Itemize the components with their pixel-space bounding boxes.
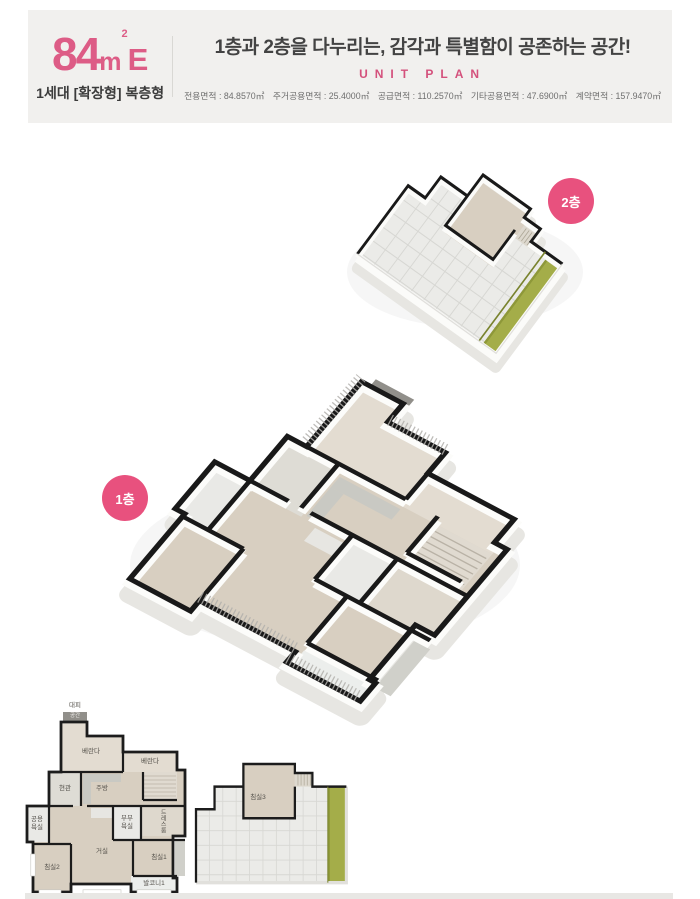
room-label-evacuation: 대피 <box>63 702 87 710</box>
room-label-entrance: 현관 <box>53 785 77 793</box>
floor-2-badge: 2층 <box>548 178 594 224</box>
room-label-balcony1: 발코니1 <box>136 880 172 888</box>
room-label-bedroom3: 침실3 <box>240 794 276 802</box>
room-label-veranda-right: 베란다 <box>134 758 166 766</box>
floor2-3d-plan <box>347 144 583 368</box>
floor-plans-canvas <box>0 0 700 899</box>
floor1-3d-plan <box>120 349 571 724</box>
room-label-bedroom1: 침실1 <box>143 854 175 862</box>
room-label-evacuation-box: 공간 <box>63 713 87 720</box>
room-label-bath-master: 부부욕실 <box>119 815 135 831</box>
room-label-bedroom2: 침실2 <box>36 864 68 872</box>
unit-plan-page: 84m2E 1세대 [확장형] 복층형 1층과 2층을 다누리는, 감각과 특별… <box>0 0 700 899</box>
bottom-section-divider <box>25 893 673 899</box>
floor-1-badge: 1층 <box>102 475 148 521</box>
room-label-kitchen: 주방 <box>90 785 114 793</box>
room-label-living-room: 거실 <box>86 848 118 856</box>
room-label-dress-room: 드레스룸 <box>158 803 165 839</box>
floor2-2d-plan <box>196 764 346 883</box>
room-label-veranda-left: 베란다 <box>75 748 107 756</box>
room-label-bath-common: 공용욕실 <box>29 816 45 832</box>
